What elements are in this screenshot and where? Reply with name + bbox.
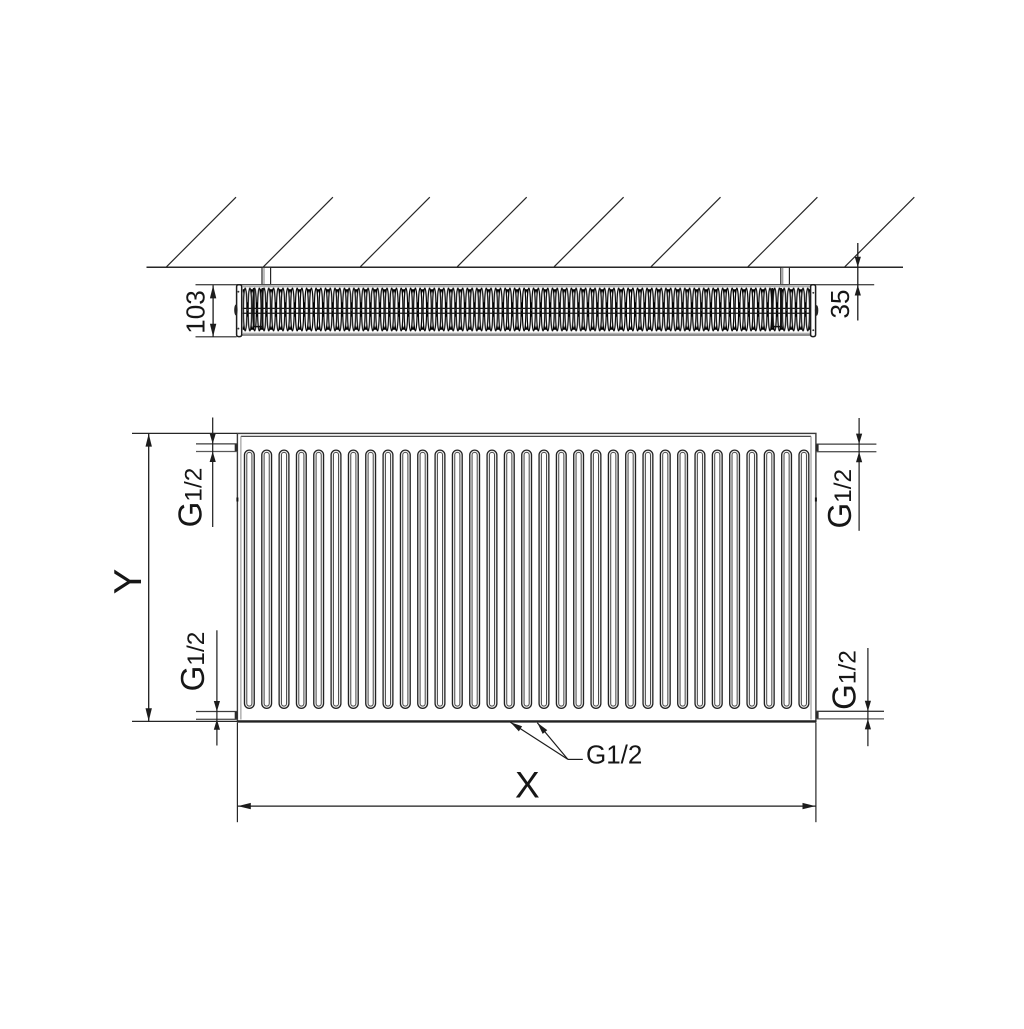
svg-text:35: 35 (825, 290, 855, 319)
svg-text:Y: Y (107, 569, 150, 595)
svg-text:103: 103 (181, 290, 211, 333)
svg-text:X: X (515, 764, 540, 805)
svg-text:G1/2: G1/2 (586, 740, 642, 770)
